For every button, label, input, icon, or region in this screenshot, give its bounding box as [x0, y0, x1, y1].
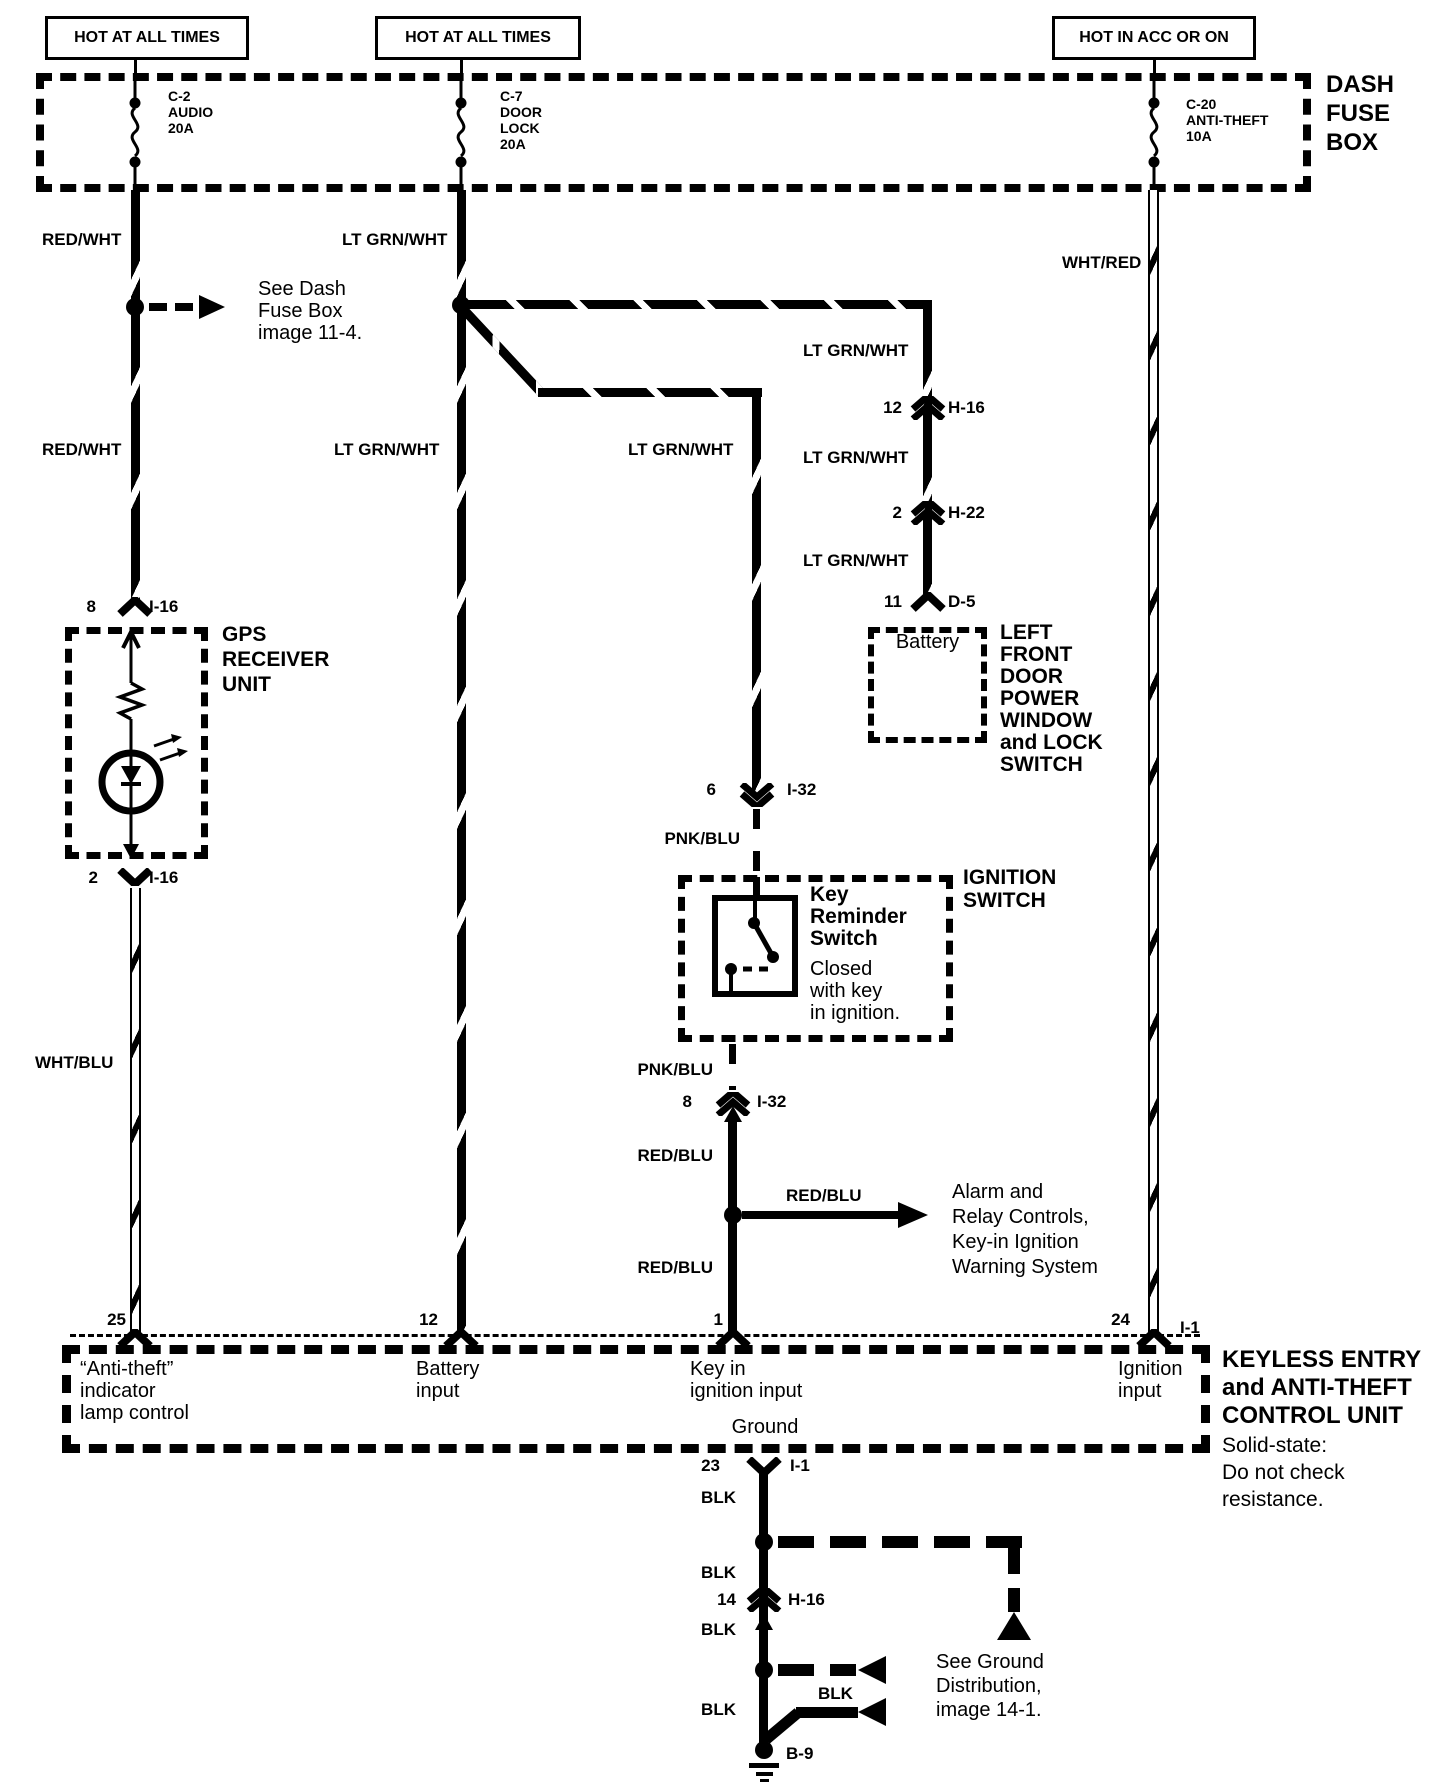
wire-wht-blu [130, 888, 141, 1336]
control-unit-connector-line [70, 1334, 1200, 1337]
h16-12-pin: 12 [866, 398, 902, 417]
label-lt-grn-wht-6: LT GRN/WHT [803, 551, 908, 570]
wire-pnk-blu-upper [753, 809, 760, 873]
wire-branch-horizontal-top [461, 300, 932, 309]
ground-function: Ground [700, 1416, 830, 1438]
alarm-arrowhead-icon [898, 1202, 928, 1228]
wire-red-blu [728, 1120, 737, 1336]
hot-at-all-times-box-1: HOT AT ALL TIMES [45, 16, 249, 60]
label-wht-blu: WHT/BLU [35, 1053, 113, 1072]
pin-24-connector-name: I-1 [1180, 1318, 1200, 1337]
label-red-wht-1: RED/WHT [42, 230, 121, 249]
see-ground-note: See Ground Distribution, image 14-1. [936, 1650, 1044, 1722]
wire-pnk-blu-inside [753, 877, 760, 895]
label-lt-grn-wht-4: LT GRN/WHT [803, 341, 908, 360]
key-reminder-switch-desc: Closed with key in ignition. [810, 958, 900, 1024]
hot-at-all-times-box-2: HOT AT ALL TIMES [375, 16, 581, 60]
fuse-c20-label: C-20 ANTI-THEFT 10A [1186, 96, 1268, 144]
i16-2-name: I-16 [149, 868, 178, 887]
stub-wire-1 [134, 58, 137, 74]
pin-25-connector-icon [117, 1329, 153, 1349]
label-pnk-blu-2: PNK/BLU [613, 1060, 713, 1079]
wire-red-blu-branch [742, 1211, 900, 1219]
junction-red-blu [724, 1206, 742, 1224]
label-blk-1: BLK [666, 1488, 736, 1507]
label-blk-4: BLK [666, 1700, 736, 1719]
see-ground-arrowhead-1-icon [858, 1656, 886, 1684]
wire-blk-branch-1-corner [1008, 1536, 1022, 1548]
label-lt-grn-wht-5: LT GRN/WHT [803, 448, 908, 467]
hot-box-1-label: HOT AT ALL TIMES [74, 29, 220, 47]
door-switch-position-label: Battery [872, 631, 983, 653]
ignition-switch-title: IGNITION SWITCH [963, 866, 1056, 912]
see-dash-arrowhead-icon [199, 295, 225, 319]
d5-11-name: D-5 [948, 592, 975, 611]
fuse-c7-icon [451, 73, 471, 192]
wire-blk-branch-1 [778, 1536, 1022, 1548]
h16-14-pin: 14 [666, 1590, 736, 1609]
ground-branch-arrowhead-icon [997, 1612, 1031, 1640]
i16-2-pin: 2 [78, 868, 98, 887]
label-red-blu-2: RED/BLU [786, 1186, 862, 1205]
wire-wht-red [1148, 190, 1159, 1336]
wire-red-wht [131, 190, 140, 602]
see-dash-note: See Dash Fuse Box image 11-4. [258, 278, 362, 344]
control-unit-title: KEYLESS ENTRY and ANTI-THEFT CONTROL UNI… [1222, 1346, 1421, 1430]
label-blk-5: BLK [818, 1684, 853, 1703]
wiring-diagram: HOT AT ALL TIMES HOT AT ALL TIMES HOT IN… [0, 0, 1456, 1790]
pin-12-number: 12 [404, 1310, 438, 1329]
dash-fuse-box-outline [36, 73, 1311, 192]
junction-red-wht [126, 298, 144, 316]
see-dash-arrow-dash-1 [149, 303, 167, 311]
pin-23-number: 23 [690, 1456, 720, 1475]
pin-1-connector-icon [715, 1329, 751, 1349]
i32-8-pin: 8 [668, 1092, 692, 1111]
pin-1-function: Key in ignition input [690, 1358, 802, 1402]
fuse-c7-label: C-7 DOOR LOCK 20A [500, 88, 542, 152]
key-reminder-switch-icon [712, 895, 798, 997]
label-red-wht-2: RED/WHT [42, 440, 121, 459]
pin-24-connector-icon [1136, 1329, 1172, 1349]
blk-up-arrowhead-icon [755, 1614, 773, 1630]
control-unit-desc: Solid-state: Do not check resistance. [1222, 1432, 1345, 1513]
pin-25-number: 25 [92, 1310, 126, 1329]
d5-11-pin: 11 [866, 592, 902, 611]
wire-blk-b9-horizontal [796, 1707, 858, 1718]
i16-8-pin: 8 [72, 597, 96, 616]
fuse-c2-label: C-2 AUDIO 20A [168, 88, 213, 136]
pin-12-connector-icon [443, 1329, 479, 1349]
alarm-note: Alarm and Relay Controls, Key-in Ignitio… [952, 1180, 1098, 1280]
key-reminder-switch-label: Key Reminder Switch [810, 884, 907, 950]
label-lt-grn-wht-1: LT GRN/WHT [342, 230, 447, 249]
hot-box-2-label: HOT AT ALL TIMES [405, 29, 551, 47]
label-red-blu-3: RED/BLU [613, 1258, 713, 1277]
wire-lt-grn-wht-battery [457, 190, 466, 1336]
i32-6-name: I-32 [787, 780, 816, 799]
fuse-c20-icon [1144, 73, 1164, 192]
label-pnk-blu-1: PNK/BLU [640, 829, 740, 848]
h22-2-connector-icon [910, 501, 946, 525]
h16-12-connector-icon [910, 396, 946, 420]
pin-12-function: Battery input [416, 1358, 479, 1402]
door-switch-title: LEFT FRONT DOOR POWER WINDOW and LOCK SW… [1000, 622, 1103, 776]
i16-2-connector-icon [117, 868, 153, 886]
b9-ground-dot [755, 1741, 773, 1759]
control-unit-box-outline [62, 1345, 1210, 1453]
pin-24-function: Ignition input [1118, 1358, 1183, 1402]
pin-24-number: 24 [1096, 1310, 1130, 1329]
label-blk-2: BLK [666, 1563, 736, 1582]
i16-8-connector-icon [117, 597, 153, 617]
hot-in-acc-box: HOT IN ACC OR ON [1052, 16, 1256, 60]
h16-12-name: H-16 [948, 398, 985, 417]
pin-1-number: 1 [689, 1310, 723, 1329]
see-dash-arrow-dash-2 [175, 303, 193, 311]
label-red-blu-1: RED/BLU [613, 1146, 713, 1165]
wire-blk-branch-1-drop [1008, 1548, 1020, 1612]
ground-symbol-bar-1 [749, 1763, 779, 1768]
hot-box-3-label: HOT IN ACC OR ON [1079, 29, 1229, 47]
wire-lt-grn-wht-door [923, 300, 932, 603]
i32-6-pin: 6 [692, 780, 716, 799]
b9-name: B-9 [786, 1744, 813, 1763]
i16-8-name: I-16 [149, 597, 178, 616]
h16-14-connector-icon [746, 1588, 782, 1612]
stub-wire-3 [1153, 58, 1156, 74]
pin-23-connector-name: I-1 [790, 1456, 810, 1475]
h22-2-pin: 2 [866, 503, 902, 522]
fuse-c2-icon [125, 73, 145, 192]
pin-25-function: “Anti-theft” indicator lamp control [80, 1358, 189, 1424]
h16-14-name: H-16 [788, 1590, 825, 1609]
wire-pnk-blu-lower [729, 1044, 736, 1090]
label-lt-grn-wht-3: LT GRN/WHT [628, 440, 733, 459]
h22-2-name: H-22 [948, 503, 985, 522]
stub-wire-2 [460, 58, 463, 74]
ground-symbol-bar-3 [760, 1779, 769, 1782]
i32-8-name: I-32 [757, 1092, 786, 1111]
dash-fuse-box-title: DASH FUSE BOX [1326, 70, 1394, 157]
ground-symbol-bar-2 [756, 1772, 773, 1776]
label-wht-red: WHT/RED [1062, 253, 1141, 272]
wire-blk-branch-2 [778, 1664, 856, 1676]
wire-branch-diagonal [456, 301, 544, 395]
d5-11-connector-icon [910, 592, 946, 612]
junction-blk-2 [755, 1661, 773, 1679]
junction-blk-1 [755, 1533, 773, 1551]
label-blk-3: BLK [666, 1620, 736, 1639]
wire-branch-horizontal-mid [538, 388, 762, 397]
gps-led-circuit-icon [90, 627, 200, 860]
see-ground-arrowhead-2-icon [858, 1698, 886, 1726]
gps-title: GPS RECEIVER UNIT [222, 622, 329, 697]
label-lt-grn-wht-2: LT GRN/WHT [334, 440, 439, 459]
wire-lt-grn-wht-keyin [752, 388, 761, 791]
i32-6-connector-icon [739, 783, 775, 807]
